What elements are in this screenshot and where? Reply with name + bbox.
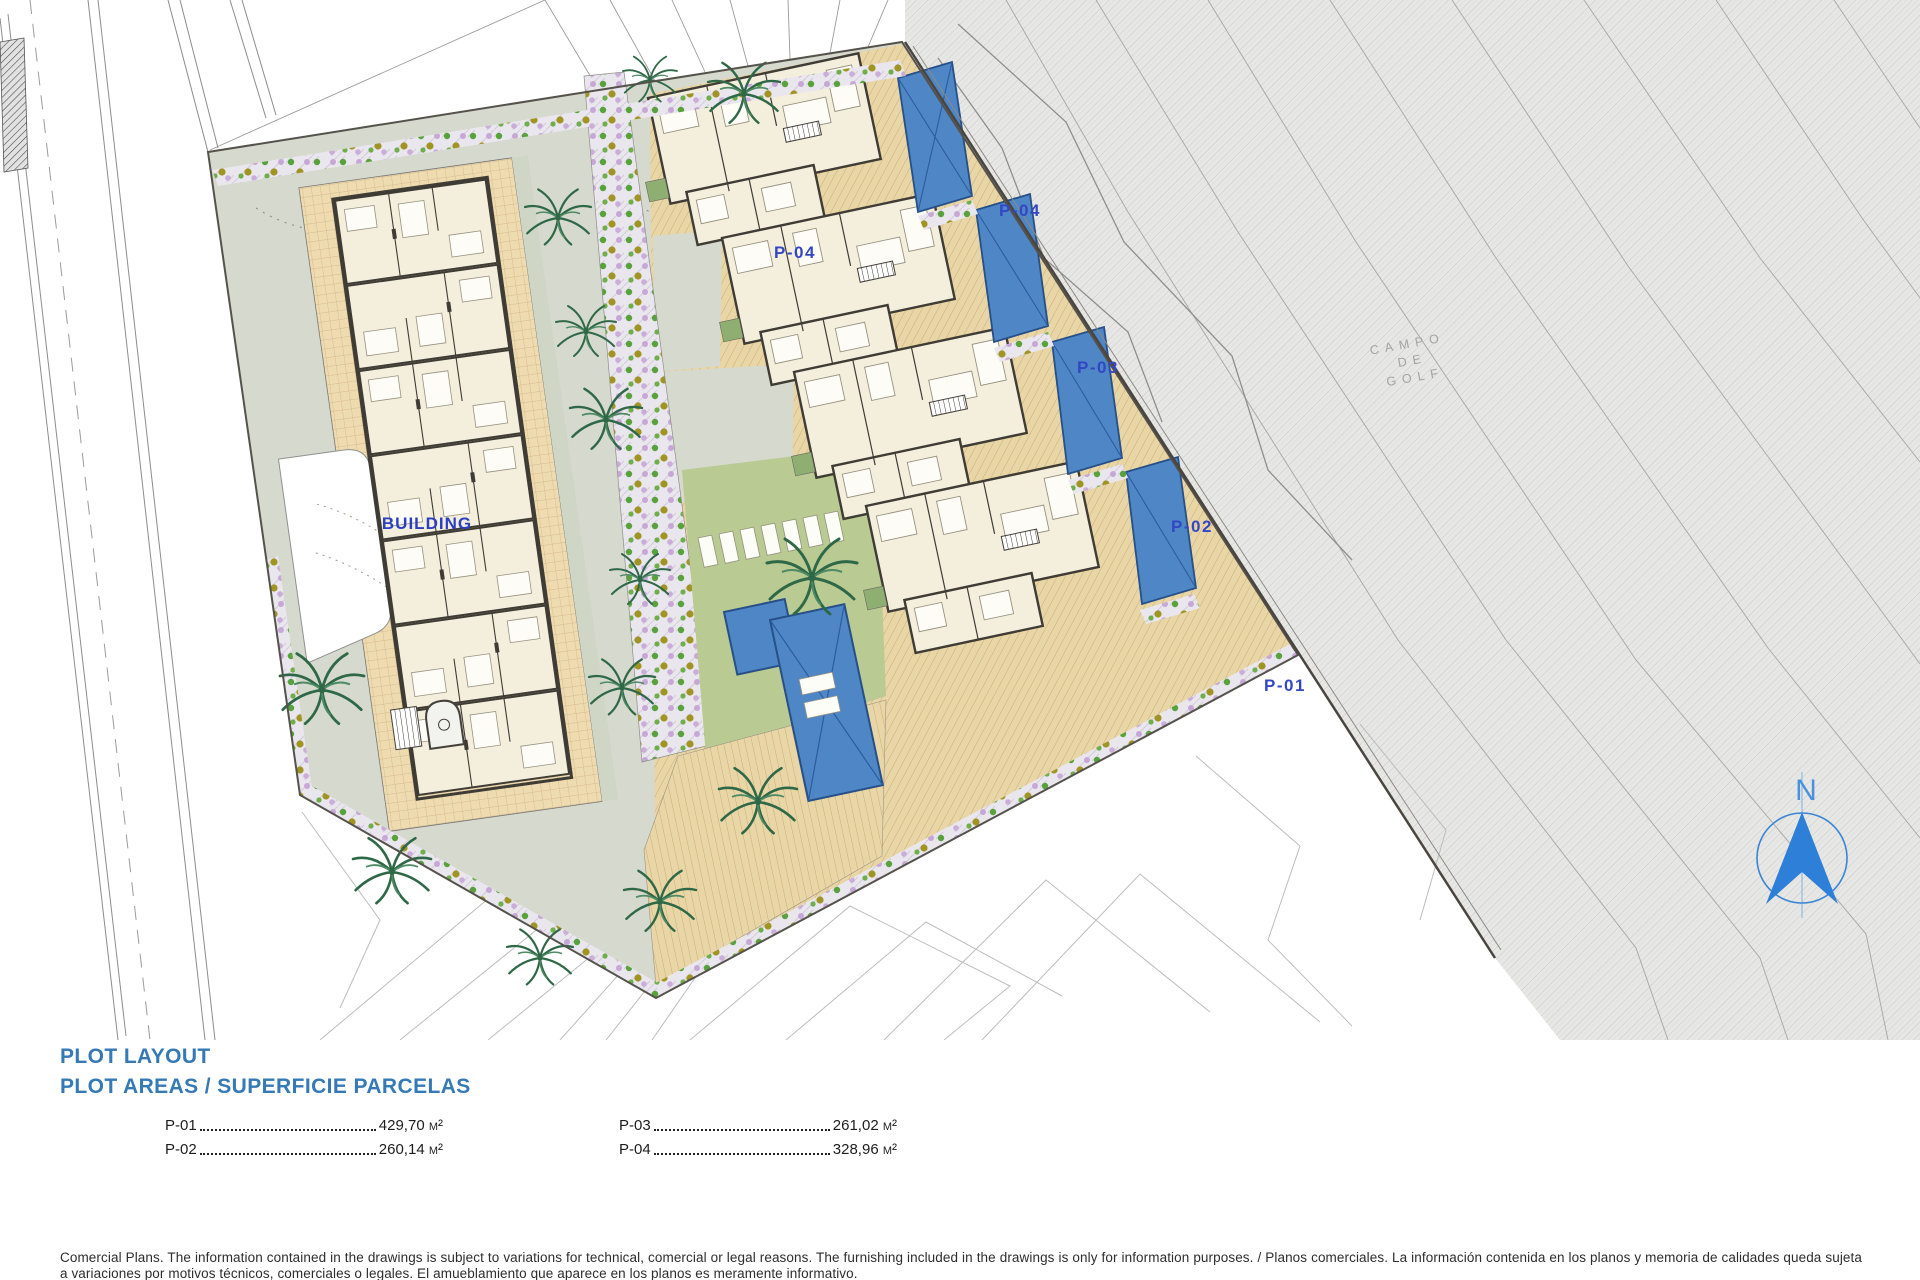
legend-block: PLOT LAYOUT PLOT AREAS / SUPERFICIE PARC… <box>60 1042 1060 1158</box>
plot-area-value: 429,70 m² <box>379 1117 443 1134</box>
dot-leader <box>200 1129 376 1131</box>
plan-title-line2: PLOT AREAS / SUPERFICIE PARCELAS <box>60 1072 1060 1102</box>
dot-leader <box>654 1153 830 1155</box>
building-label: BUILDING <box>382 514 472 533</box>
plot-area-value: 260,14 m² <box>379 1141 443 1158</box>
plot-area-row: P-02 260,14 m² <box>165 1141 443 1158</box>
plot-label-p04: P-04 <box>999 201 1041 220</box>
plot-areas-table: P-01 429,70 m² P-02 260,14 m² P-03 261,0… <box>60 1117 945 1158</box>
plot-area-label: P-01 <box>165 1117 197 1134</box>
plaza-walk-1 <box>653 230 722 372</box>
stairs <box>390 706 421 749</box>
page: CAMPO DE GOLF <box>0 0 1920 1280</box>
dot-leader <box>200 1153 376 1155</box>
plot-area-value: 261,02 m² <box>833 1117 897 1134</box>
plot-label-p04-left: P-04 <box>774 243 816 262</box>
plan-title-line1: PLOT LAYOUT <box>60 1042 1060 1072</box>
plot-area-value: 328,96 m² <box>833 1141 897 1158</box>
north-label: N <box>1795 774 1817 807</box>
disclaimer-en: Comercial Plans. The information contain… <box>60 1250 1261 1265</box>
plot-label-p03: P-03 <box>1077 358 1119 377</box>
plot-label-p02: P-02 <box>1171 517 1213 536</box>
plot-area-label: P-02 <box>165 1141 197 1158</box>
plot-area-label: P-03 <box>619 1117 651 1134</box>
plot-area-row: P-03 261,02 m² <box>619 1117 897 1134</box>
plot-label-p01: P-01 <box>1264 676 1306 695</box>
plot-area-row: P-04 328,96 m² <box>619 1141 897 1158</box>
plot-area-row: P-01 429,70 m² <box>165 1117 443 1134</box>
disclaimer-text: Comercial Plans. The information contain… <box>60 1250 1862 1280</box>
site-plan-drawing: CAMPO DE GOLF <box>0 0 1920 1040</box>
dot-leader <box>654 1129 830 1131</box>
road-hatched-island <box>0 38 28 172</box>
plot-area-label: P-04 <box>619 1141 651 1158</box>
